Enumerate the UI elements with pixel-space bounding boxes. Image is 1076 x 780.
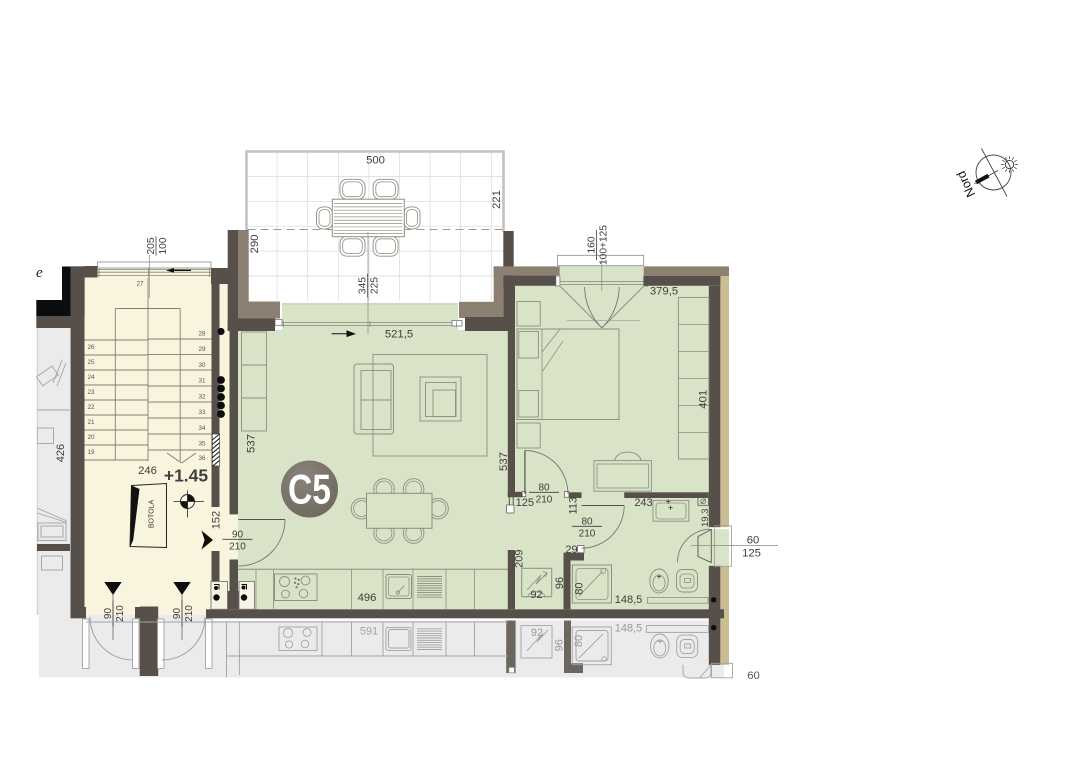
svg-text:209: 209 [514,550,526,568]
svg-text:31: 31 [198,378,206,385]
svg-text:90: 90 [172,608,183,620]
svg-text:225: 225 [370,277,381,294]
svg-text:345: 345 [358,277,369,294]
svg-text:401: 401 [697,390,709,409]
svg-text:152: 152 [210,511,222,529]
svg-text:20: 20 [87,434,95,441]
svg-text:80: 80 [573,635,585,647]
svg-text:92: 92 [531,627,543,639]
svg-text:100+125: 100+125 [599,225,610,265]
svg-text:537: 537 [246,434,258,453]
svg-text:205: 205 [146,237,157,254]
svg-text:19,3: 19,3 [700,509,711,528]
svg-text:35: 35 [198,441,206,448]
svg-text:+1.45: +1.45 [164,466,209,486]
svg-text:160: 160 [587,236,598,253]
svg-text:426: 426 [55,444,67,462]
svg-text:125: 125 [742,548,761,560]
svg-text:92: 92 [530,589,542,601]
svg-text:36: 36 [198,455,206,462]
svg-text:210: 210 [229,541,246,552]
svg-text:521,5: 521,5 [385,329,413,341]
svg-text:60: 60 [747,670,760,682]
svg-text:30: 30 [198,362,206,369]
svg-text:96: 96 [553,639,565,651]
svg-text:BOTOLA: BOTOLA [149,500,156,529]
svg-text:243: 243 [634,497,652,509]
svg-text:210: 210 [579,528,596,539]
svg-text:80: 80 [574,582,586,594]
svg-text:23: 23 [87,389,95,396]
svg-text:210: 210 [184,605,195,622]
svg-text:125: 125 [516,497,534,509]
svg-text:246: 246 [138,465,157,477]
svg-text:100: 100 [158,237,169,254]
svg-text:90: 90 [103,608,114,620]
svg-text:27: 27 [136,281,144,288]
svg-text:290: 290 [249,235,261,254]
svg-text:29: 29 [198,346,206,353]
svg-text:e: e [36,265,43,281]
svg-text:90: 90 [232,529,244,540]
svg-text:148,5: 148,5 [615,594,643,606]
svg-text:21: 21 [87,419,95,426]
svg-text:113: 113 [567,497,579,515]
svg-text:500: 500 [366,155,385,167]
svg-text:221: 221 [491,190,503,209]
svg-text:34: 34 [198,425,206,432]
svg-text:148,5: 148,5 [615,623,643,635]
svg-text:80: 80 [538,482,550,493]
svg-text:591: 591 [360,626,378,638]
svg-text:80: 80 [581,516,593,527]
svg-text:C5: C5 [288,466,331,513]
svg-text:537: 537 [498,452,510,471]
svg-text:60: 60 [747,535,760,547]
svg-text:25: 25 [87,359,95,366]
svg-text:496: 496 [358,592,377,604]
svg-text:26: 26 [87,344,95,351]
svg-text:22: 22 [87,404,95,411]
svg-text:19: 19 [87,449,95,456]
svg-text:96: 96 [554,577,566,589]
svg-text:29: 29 [565,544,577,556]
svg-text:32: 32 [198,393,206,400]
svg-text:210: 210 [536,494,553,505]
svg-text:28: 28 [198,331,206,338]
svg-text:24: 24 [87,374,95,381]
svg-text:33: 33 [198,409,206,416]
svg-text:379,5: 379,5 [650,286,678,298]
svg-text:210: 210 [115,605,126,622]
